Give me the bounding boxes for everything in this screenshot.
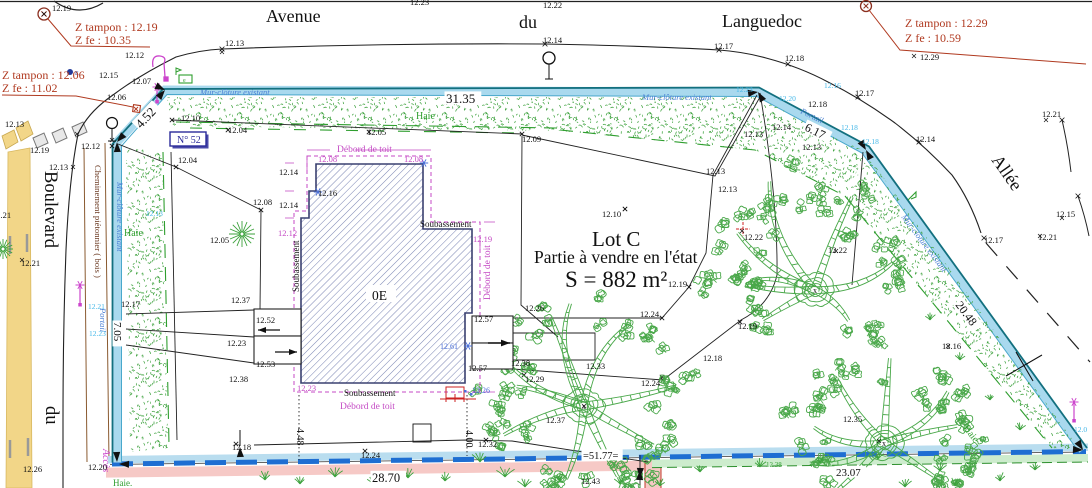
svg-text:12.37: 12.37 — [546, 415, 565, 425]
svg-text:12.16: 12.16 — [942, 341, 961, 351]
svg-text:12.13: 12.13 — [5, 119, 24, 129]
svg-text:Mur-clôture existant: Mur-clôture existant — [199, 87, 270, 97]
svg-text:12.26: 12.26 — [472, 386, 490, 395]
svg-text:12.17: 12.17 — [714, 41, 733, 51]
svg-text:12.29: 12.29 — [525, 374, 544, 384]
svg-text:e: e — [183, 78, 186, 84]
svg-text:Z fe : 11.02: Z fe : 11.02 — [2, 81, 58, 95]
svg-text:12.43: 12.43 — [581, 476, 600, 486]
svg-text:12.24: 12.24 — [361, 450, 381, 460]
svg-text:12.04: 12.04 — [228, 125, 248, 135]
svg-text:12.14: 12.14 — [772, 122, 792, 132]
svg-text:12.37: 12.37 — [231, 295, 250, 305]
svg-text:Mur-clôture existant: Mur-clôture existant — [641, 92, 712, 102]
svg-text:12.15: 12.15 — [1056, 209, 1075, 219]
svg-text:12.32: 12.32 — [478, 439, 497, 449]
svg-text:12.09: 12.09 — [522, 134, 541, 144]
svg-text:12.21: 12.21 — [21, 258, 40, 268]
svg-text:7.05: 7.05 — [111, 322, 123, 342]
svg-text:12.0: 12.0 — [1074, 425, 1087, 434]
svg-text:12.23: 12.23 — [410, 0, 429, 7]
svg-text:Z tampon : 12.19: Z tampon : 12.19 — [75, 20, 158, 34]
svg-text:12.19: 12.19 — [668, 279, 687, 289]
svg-text:Haie: Haie — [416, 111, 435, 122]
svg-text:12.10: 12.10 — [602, 209, 621, 219]
svg-text:12.16: 12.16 — [824, 81, 841, 90]
svg-text:12.53: 12.53 — [256, 359, 275, 369]
svg-text:12.18: 12.18 — [841, 123, 858, 132]
svg-text:Partie à vendre en l'état: Partie à vendre en l'état — [534, 247, 698, 267]
svg-text:12.18: 12.18 — [862, 137, 879, 146]
svg-text:12.38: 12.38 — [766, 461, 782, 469]
svg-text:Mur-clôture existant: Mur-clôture existant — [115, 181, 125, 252]
svg-text:=51.77=: =51.77= — [583, 451, 619, 462]
svg-text:12.33: 12.33 — [586, 361, 605, 371]
svg-text:12.22: 12.22 — [828, 245, 847, 255]
svg-text:12.61: 12.61 — [440, 342, 458, 351]
svg-text:12.23: 12.23 — [736, 85, 753, 94]
svg-text:12.23: 12.23 — [89, 329, 106, 338]
svg-text:Boulevard: Boulevard — [40, 171, 60, 249]
svg-text:12.57: 12.57 — [468, 363, 487, 373]
svg-text:Débord de toit: Débord de toit — [340, 402, 395, 412]
svg-text:12.19: 12.19 — [30, 145, 49, 155]
svg-text:12.08: 12.08 — [404, 154, 423, 164]
svg-text:Haie.: Haie. — [113, 478, 132, 488]
svg-text:S = 882 m²: S = 882 m² — [565, 267, 667, 292]
svg-text:du: du — [41, 406, 61, 425]
svg-text:12.29: 12.29 — [920, 52, 939, 62]
svg-text:12.17: 12.17 — [855, 88, 874, 98]
svg-text:12.24: 12.24 — [641, 378, 661, 388]
svg-text:12.08: 12.08 — [253, 197, 272, 207]
svg-text:12.17: 12.17 — [984, 235, 1003, 245]
svg-text:12.18: 12.18 — [703, 353, 722, 363]
svg-text:Haie: Haie — [124, 228, 143, 239]
svg-text:0E: 0E — [372, 288, 387, 303]
svg-text:12.12: 12.12 — [125, 50, 144, 60]
svg-text:12.06: 12.06 — [107, 92, 126, 102]
svg-text:Soubassement: Soubassement — [291, 240, 301, 292]
svg-text:12.05: 12.05 — [367, 127, 386, 137]
svg-text:28.70: 28.70 — [372, 471, 400, 485]
svg-text:12.21: 12.21 — [88, 302, 105, 311]
svg-text:12.12: 12.12 — [278, 228, 297, 238]
svg-text:12.21: 12.21 — [0, 210, 11, 220]
svg-text:12.14: 12.14 — [279, 200, 299, 210]
svg-text:12.14: 12.14 — [916, 134, 936, 144]
svg-text:12.20: 12.20 — [779, 94, 796, 103]
svg-text:Débord de toit: Débord de toit — [483, 245, 493, 300]
svg-text:12.19: 12.19 — [52, 3, 71, 13]
svg-text:12.07: 12.07 — [132, 76, 151, 86]
svg-text:12.17: 12.17 — [121, 299, 140, 309]
svg-text:12.18: 12.18 — [232, 442, 251, 452]
svg-text:12.13: 12.13 — [225, 38, 244, 48]
svg-text:12.13: 12.13 — [802, 142, 821, 152]
svg-text:12.35: 12.35 — [843, 414, 862, 424]
svg-text:12.38: 12.38 — [229, 374, 248, 384]
svg-text:Soubassement: Soubassement — [344, 388, 396, 398]
svg-text:12.19: 12.19 — [473, 234, 492, 244]
svg-text:Soubassement: Soubassement — [420, 219, 472, 229]
svg-text:12.26: 12.26 — [525, 303, 544, 313]
svg-text:Cheminement piétonnier ( bois: Cheminement piétonnier ( bois ) — [93, 165, 103, 278]
svg-text:12.23: 12.23 — [297, 383, 316, 393]
svg-text:12.21: 12.21 — [1042, 109, 1061, 119]
svg-text:12.18: 12.18 — [808, 99, 827, 109]
svg-text:12.18: 12.18 — [785, 53, 804, 63]
svg-text:12.19: 12.19 — [738, 321, 757, 331]
svg-text:12.13: 12.13 — [706, 166, 725, 176]
svg-text:12.24: 12.24 — [640, 309, 660, 319]
svg-text:12.26: 12.26 — [23, 464, 42, 474]
svg-text:12.38: 12.38 — [511, 358, 530, 368]
svg-text:4.48: 4.48 — [294, 428, 305, 446]
svg-text:12.10: 12.10 — [181, 113, 200, 123]
svg-text:4.00: 4.00 — [463, 430, 474, 448]
svg-text:12.14: 12.14 — [279, 167, 299, 177]
svg-text:12.08: 12.08 — [318, 154, 337, 164]
svg-text:12.04: 12.04 — [178, 155, 198, 165]
svg-text:Z fe : 10.35: Z fe : 10.35 — [75, 33, 131, 47]
svg-text:12.13: 12.13 — [49, 162, 68, 172]
svg-text:Z tampon : 12.29: Z tampon : 12.29 — [905, 16, 988, 30]
svg-text:12.22: 12.22 — [543, 0, 562, 10]
svg-text:12.14: 12.14 — [543, 35, 563, 45]
svg-text:12.23: 12.23 — [227, 338, 246, 348]
svg-text:12.13: 12.13 — [744, 129, 763, 139]
svg-text:31.35: 31.35 — [446, 91, 475, 106]
svg-text:12.57: 12.57 — [474, 314, 493, 324]
svg-text:12.13: 12.13 — [146, 209, 163, 218]
svg-text:12.22: 12.22 — [744, 232, 763, 242]
svg-text:12.05: 12.05 — [210, 235, 229, 245]
svg-text:12.20: 12.20 — [88, 462, 107, 472]
svg-text:Languedoc: Languedoc — [722, 11, 802, 31]
svg-text:N° 52: N° 52 — [177, 135, 201, 146]
svg-text:12.13: 12.13 — [718, 184, 737, 194]
svg-text:Z tampon : 12.06: Z tampon : 12.06 — [2, 68, 85, 82]
svg-text:12.12: 12.12 — [81, 141, 100, 151]
svg-text:12.15: 12.15 — [99, 70, 118, 80]
svg-text:du: du — [519, 12, 537, 32]
svg-text:Débord de toit: Débord de toit — [337, 145, 392, 155]
svg-text:12.16: 12.16 — [318, 188, 337, 198]
svg-text:Z fe : 10.59: Z fe : 10.59 — [905, 31, 961, 45]
svg-text:23.07: 23.07 — [836, 467, 861, 479]
svg-text:Avenue: Avenue — [266, 6, 321, 26]
svg-text:12.52: 12.52 — [256, 315, 275, 325]
